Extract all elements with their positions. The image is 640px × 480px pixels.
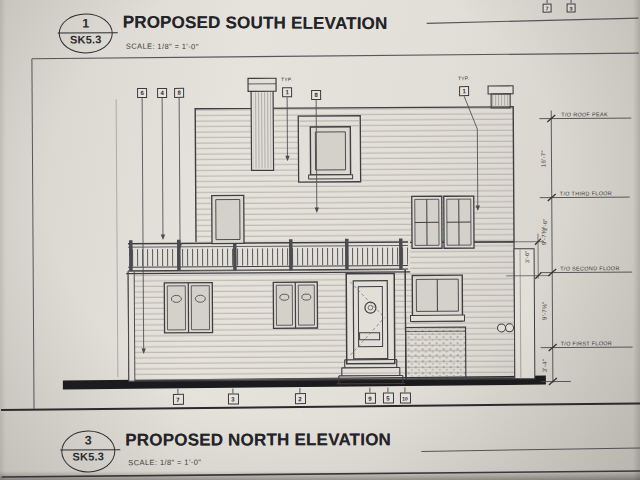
callout-tag: 4 [157,88,167,98]
callout-tag: 8 [174,88,184,98]
north-elevation-title: PROPOSED NORTH ELEVATION [125,430,391,450]
level-label-first-floor: T/O FIRST FLOOR [561,340,613,346]
callout-tag: 2 [294,393,305,404]
level-label-second-floor: T/O SECOND FLOOR [560,265,620,271]
south-drawing-bubble: 1 SK5.3 [59,13,113,53]
dim-railing-upper: 2'-6" [540,203,550,247]
typ-note: TYP. [458,75,469,81]
callout-tag: 5 [382,393,393,404]
dim-roof-to-third: 16'-7" [538,137,548,181]
callout-tag: 6 [137,88,147,98]
callout-tag: 7 [172,394,183,405]
callout-tag: 7 [543,4,552,13]
south-scale-note: SCALE: 1/8" = 1'-0" [126,42,199,51]
callout-tag: 1 [282,87,292,97]
typ-note: TYP. [281,76,292,82]
north-sheet-number: SK5.3 [72,451,104,462]
dim-first-to-grade: 3'-4" [540,344,550,388]
callout-tag: 3 [567,3,576,12]
north-drawing-bubble: 3 SK5.3 [61,430,115,472]
level-label-roof-peak: T/O ROOF PEAK [561,111,608,117]
dim-second-to-first: 9'-7½" [539,289,549,333]
callout-tag: 3 [227,394,238,405]
paper-sheet: 1 SK5.3 PROPOSED SOUTH ELEVATION SCALE: … [0,0,640,480]
photographed-drawing-sheet: 1 SK5.3 PROPOSED SOUTH ELEVATION SCALE: … [0,0,640,480]
dim-railing-lower: 3'-6" [522,235,532,279]
north-scale-note: SCALE: 1/8" = 1'-0" [128,458,201,467]
north-drawing-number: 3 [85,434,92,447]
callout-tag: 9 [364,393,375,404]
south-sheet-number: SK5.3 [70,34,102,45]
callout-tag: 1 [459,86,469,96]
level-label-third-floor: T/O THIRD FLOOR [560,190,612,196]
callout-tag: 10 [399,392,410,403]
south-drawing-number: 1 [82,17,89,30]
south-elevation-title: PROPOSED SOUTH ELEVATION [123,13,388,35]
callout-tag: 8 [311,90,321,100]
